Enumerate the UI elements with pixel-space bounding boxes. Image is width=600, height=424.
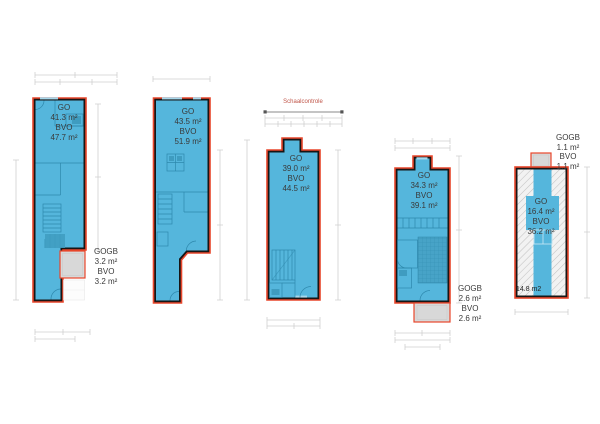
unit-4-roof-terrace (418, 237, 447, 283)
floor-plan-sheet: Schaalcontrole GO 41.3 m² BVO 47.7 m² GO… (0, 0, 600, 424)
unit-5-bvo-value: 36.2 m² (517, 227, 565, 237)
unit-2-go-label: GO (164, 107, 212, 117)
unit-1-gogb-terrace (60, 251, 85, 278)
unit-1-go-value: 41.3 m² (40, 113, 88, 123)
unit-1-area-label: GO 41.3 m² BVO 47.7 m² (40, 103, 88, 143)
unit-3-go-value: 39.0 m² (272, 164, 320, 174)
unit-3-go-label: GO (272, 154, 320, 164)
unit-3-bvo-label: BVO (272, 174, 320, 184)
unit-4-bvo-label: BVO (400, 191, 448, 201)
unit-4-gogb-balcony (414, 303, 450, 322)
unit-5-area-label: GO 16.4 m² BVO 36.2 m² (517, 197, 565, 237)
unit-2-bvo-label: BVO (164, 127, 212, 137)
unit-4-go-value: 34.3 m² (400, 181, 448, 191)
unit-4-area-label: GO 34.3 m² BVO 39.1 m² (400, 171, 448, 211)
unit-4-gogb-label: GOGB 2.6 m² BVO 2.6 m² (450, 284, 490, 324)
unit-2-bvo-value: 51.9 m² (164, 137, 212, 147)
unit-1-bvo-value: 47.7 m² (40, 133, 88, 143)
unit-3-bvo-value: 44.5 m² (272, 184, 320, 194)
unit-5-gogb-label: GOGB 1.1 m² BVO 1.1 m² (548, 133, 588, 171)
unit-1-bvo-label: BVO (40, 123, 88, 133)
unit-2-go-value: 43.5 m² (164, 117, 212, 127)
unit-1-gogb-label: GOGB 3.2 m² BVO 3.2 m² (86, 247, 126, 287)
unit-4-go-label: GO (400, 171, 448, 181)
unit-3-area-label: GO 39.0 m² BVO 44.5 m² (272, 154, 320, 194)
unit-5-bvo-label: BVO (517, 217, 565, 227)
unit-5-go-label: GO (517, 197, 565, 207)
unit-2-area-label: GO 43.5 m² BVO 51.9 m² (164, 107, 212, 147)
unit-4-bvo-value: 39.1 m² (400, 201, 448, 211)
unit-5-go-value: 16.4 m² (517, 207, 565, 217)
unit-5-floor-note: 14.8 m2 (516, 285, 558, 295)
unit-1-go-label: GO (40, 103, 88, 113)
scale-control-label: Schaalcontrole (271, 99, 335, 106)
